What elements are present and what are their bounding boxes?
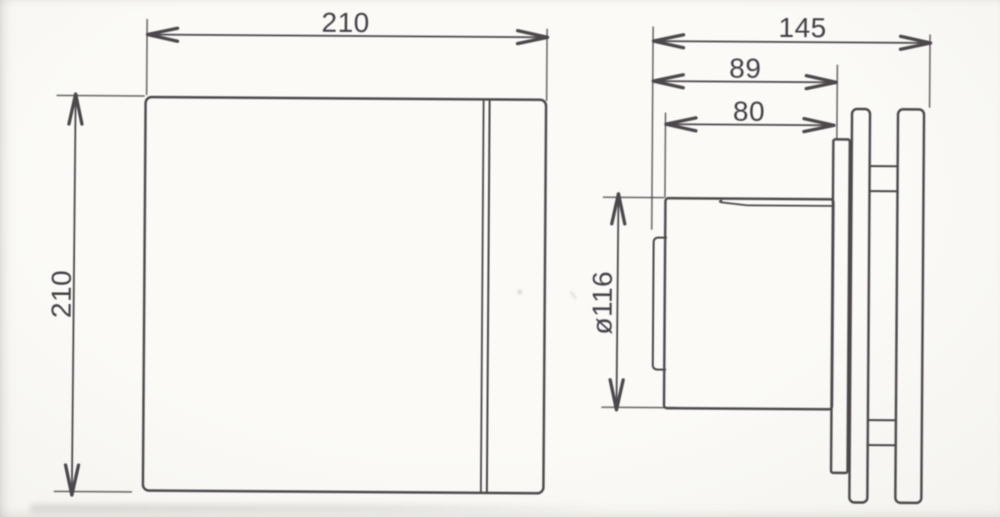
extension-line (665, 113, 666, 197)
scan-shadow-band (30, 504, 620, 513)
duct-body-outline (664, 198, 833, 409)
extension-line (57, 95, 144, 96)
wall-plate-outer (895, 109, 924, 503)
front-panel-edge-line-outer (487, 101, 490, 492)
side-view (652, 108, 924, 503)
extension-line (930, 35, 931, 107)
duct-length-label: 80 (733, 96, 765, 127)
dim-duct-length: 80 (665, 95, 834, 198)
duct-connector-bottom (868, 420, 896, 445)
scan-artifacts (518, 290, 576, 299)
scan-speck (571, 291, 576, 298)
dim-front-width: 210 (147, 6, 548, 101)
front-panel-outline (143, 97, 546, 493)
front-view (143, 97, 546, 493)
extension-line (652, 27, 653, 229)
mount-depth-label: 89 (729, 53, 761, 84)
extension-line (602, 407, 676, 408)
duct-connector-top (869, 166, 897, 191)
fan-dimension-drawing: 210 210 145 (0, 0, 1000, 517)
duct-taper-line (720, 201, 833, 206)
duct-diameter-label: ø116 (586, 271, 617, 335)
extension-line (54, 491, 131, 492)
extension-line (147, 20, 148, 95)
front-panel-edge-line-inner (481, 101, 484, 492)
technical-drawing-page: 210 210 145 (0, 0, 1000, 517)
scan-speck (518, 290, 522, 294)
total-depth-label: 145 (778, 12, 826, 43)
dim-front-height: 210 (44, 94, 144, 496)
front-height-label: 210 (46, 270, 77, 318)
extension-line (837, 65, 838, 138)
wall-plate-inner (849, 109, 870, 503)
front-width-label: 210 (321, 7, 369, 38)
